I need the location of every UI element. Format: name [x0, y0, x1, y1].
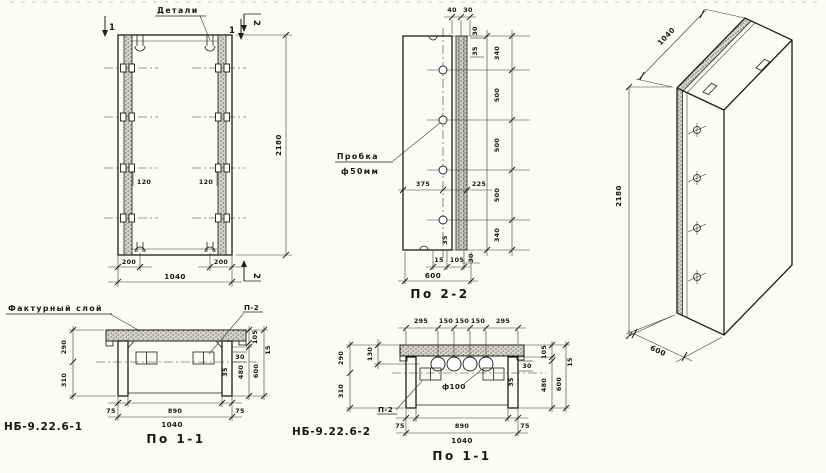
dim-150-3: 150	[471, 317, 485, 325]
dim-340-top: 340	[493, 46, 501, 60]
dim-2180-iso: 2180	[614, 185, 623, 207]
dim-500-2: 500	[493, 138, 501, 152]
caption-section-2-2: По 2-2	[410, 287, 469, 301]
dim-500-3: 500	[493, 188, 501, 202]
dim-35-edge-top: 35	[471, 46, 479, 56]
dim-1040-iso: 1040	[655, 25, 676, 47]
dim-500-1: 500	[493, 88, 501, 102]
caption-section-1-1-left: По 1-1	[146, 432, 205, 446]
dim-15-s1: 15	[264, 345, 272, 355]
dim-480-s2: 480	[540, 378, 548, 392]
cut-1-label: 1	[229, 26, 235, 36]
dim-225: 225	[472, 180, 486, 188]
dim-200-left: 200	[122, 258, 136, 266]
dim-75-left-s1: 75	[106, 407, 116, 415]
lifting-loop-top-right	[205, 35, 215, 51]
dim-600-iso: 600	[649, 343, 668, 358]
dim-30-wall-s2: 30	[522, 362, 532, 370]
dim-120-right: 120	[199, 178, 213, 186]
dim-120-left: 120	[137, 178, 151, 186]
dim-290-s2: 290	[337, 351, 345, 365]
panel-mark-1: НБ-9.22.6-1	[4, 421, 83, 433]
hole-dia-callout: ф100	[442, 382, 466, 391]
dim-1040-s1: 1040	[161, 420, 183, 429]
dim-30-edge-top: 30	[471, 26, 479, 36]
dim-375: 375	[416, 180, 430, 188]
plug-dia-label: ф50мм	[341, 167, 379, 176]
dim-1040-s2: 1040	[451, 436, 473, 445]
hole-100	[479, 357, 493, 371]
hole-100	[431, 357, 445, 371]
dim-1040-front: 1040	[164, 272, 186, 281]
iso-plug-holes	[688, 123, 706, 284]
cut-1-label: 1	[109, 23, 115, 33]
dim-310-s2: 310	[337, 384, 345, 398]
facture-layer-top-edge	[677, 18, 751, 91]
section-cut-mark-1-left: 1	[102, 16, 115, 37]
dim-150-2: 150	[455, 317, 469, 325]
plug-hole	[439, 216, 447, 224]
p2-callout: П-2	[244, 303, 259, 312]
dim-890-s2: 890	[455, 422, 469, 430]
isometric-view: 1040 2180 600	[614, 9, 792, 362]
dim-200-right: 200	[214, 258, 228, 266]
panel-mark-2: НБ-9.22.6-2	[292, 426, 371, 438]
dim-290-s1: 290	[60, 340, 68, 354]
front-elevation-view: 120 120 Детали 1 1 2 2	[102, 6, 292, 287]
dim-600-side: 600	[425, 271, 441, 280]
cut-2-label: 2	[251, 20, 261, 26]
dim-105-s1: 105	[251, 330, 259, 344]
facture-slab-2	[400, 345, 524, 356]
details-callout-label: Детали	[157, 6, 199, 15]
dim-15-side: 15	[434, 256, 444, 264]
facture-layer-front-edge	[677, 88, 682, 316]
hole-100	[447, 357, 461, 371]
dim-600-s1: 600	[252, 364, 260, 378]
side-section-view: Пробка ф50мм 40 30 30 35 340 500 500 500…	[335, 6, 530, 301]
dim-35-edge-bottom: 35	[441, 235, 449, 245]
dim-890-s1: 890	[168, 407, 182, 415]
plug-hole	[439, 66, 447, 74]
top-notch-1	[703, 83, 717, 94]
plug-hole	[439, 116, 447, 124]
dim-2180-front: 2180	[274, 134, 283, 156]
dim-105-s2: 105	[540, 345, 548, 359]
lifting-loop-bottom-right	[205, 242, 215, 252]
section-cut-mark-1-right: 1	[229, 19, 244, 40]
dim-295-l: 295	[414, 317, 428, 325]
dim-310-s1: 310	[60, 373, 68, 387]
dim-15-s2: 15	[566, 357, 574, 367]
dim-75-left-s2: 75	[395, 422, 405, 430]
plug-label: Пробка	[337, 152, 379, 161]
dim-105-side: 105	[450, 256, 464, 264]
dim-40: 40	[447, 6, 457, 14]
lifting-loop-bottom-left	[135, 242, 145, 252]
dim-30-wall-s1: 30	[235, 353, 245, 361]
dim-150-1: 150	[439, 317, 453, 325]
p2-callout-2: П-2	[378, 405, 393, 414]
caption-section-1-1-middle: По 1-1	[432, 449, 491, 463]
plug-hole	[439, 166, 447, 174]
lifting-loop-top-left	[135, 35, 145, 51]
section-cut-mark-2-top: 2	[241, 14, 261, 32]
cut-2-label: 2	[251, 273, 261, 279]
dim-130-s2: 130	[366, 347, 374, 361]
panel-working-drawing: 120 120 Детали 1 1 2 2	[0, 0, 826, 473]
dim-295-r: 295	[496, 317, 510, 325]
blueprint-page: 120 120 Детали 1 1 2 2	[0, 0, 826, 473]
dim-35-wall-s2: 35	[507, 377, 515, 387]
facture-layer-label: Фактурный слой	[8, 304, 103, 313]
dim-75-right-s1: 75	[235, 407, 245, 415]
hole-100	[463, 357, 477, 371]
section-cut-mark-2-bottom: 2	[241, 260, 261, 281]
dim-30-top: 30	[463, 6, 473, 14]
section-1-1-type2: 295 150 150 150 295 130 290 310 ф100 П-2…	[292, 317, 574, 463]
section-1-1-type1: Фактурный слой П-2 290 310 105 15 480 60…	[4, 303, 272, 446]
dim-35-wall-s1: 35	[221, 367, 229, 377]
dim-600-s2: 600	[555, 377, 563, 391]
dim-480-s1: 480	[237, 365, 245, 379]
dim-340-bottom: 340	[493, 228, 501, 242]
dim-75-right-s2: 75	[520, 422, 530, 430]
